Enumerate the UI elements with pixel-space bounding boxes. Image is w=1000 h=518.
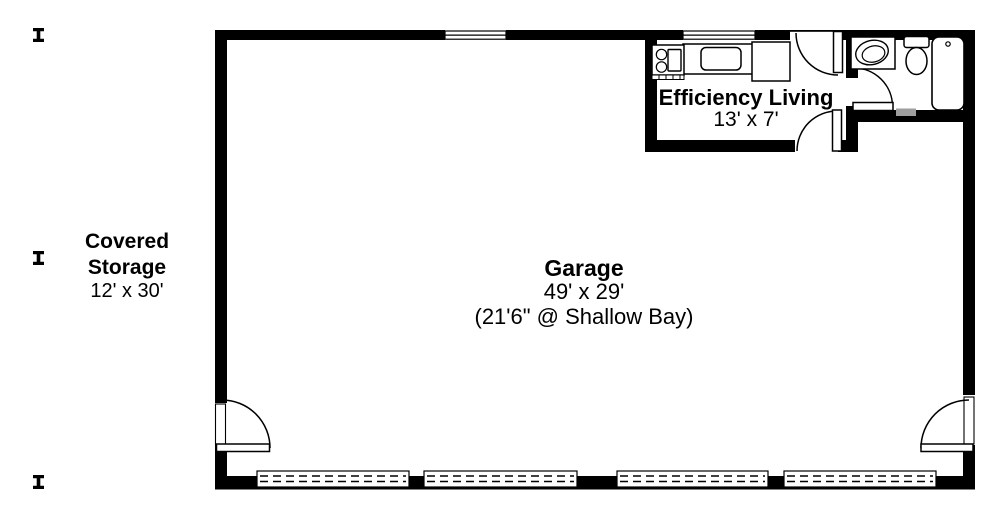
threshold	[896, 109, 916, 117]
covered-storage-dimensions: 12' x 30'	[85, 281, 169, 302]
post-icon	[33, 28, 44, 42]
efficiency-living-name: Efficiency Living	[659, 86, 834, 109]
efficiency-living-label: Efficiency Living 13' x 7'	[659, 86, 834, 131]
garage-door-panel	[257, 471, 409, 487]
range-icon	[652, 45, 684, 80]
post-icon	[33, 251, 44, 265]
garage-window-icon	[445, 31, 506, 39]
bathtub-icon	[932, 37, 964, 110]
garage-label: Garage 49' x 29' (21'6" @ Shallow Bay)	[475, 256, 694, 329]
garage-name: Garage	[475, 256, 694, 280]
garage-door-panel	[424, 471, 577, 487]
garage-note: (21'6" @ Shallow Bay)	[475, 304, 694, 329]
covered-storage-name: Covered Storage	[85, 229, 169, 281]
door-swing-icon	[921, 397, 974, 452]
kitchen-window-icon	[683, 31, 755, 39]
kitchen-sink-icon	[701, 48, 741, 71]
covered-storage-label: Covered Storage 12' x 30'	[85, 229, 169, 302]
floor-plan: Covered Storage 12' x 30' Garage 49' x 2…	[0, 0, 1000, 518]
toilet-icon	[904, 37, 929, 75]
refrigerator-icon	[752, 42, 790, 81]
efficiency-living-dimensions: 13' x 7'	[659, 109, 834, 131]
door-swing-icon	[216, 400, 271, 452]
door-swing-icon	[853, 68, 893, 111]
garage-dimensions: 49' x 29'	[475, 280, 694, 304]
vanity-sink-icon	[851, 37, 895, 69]
door-swing-icon	[796, 32, 843, 76]
garage-door-panel	[617, 471, 768, 487]
post-icon	[33, 475, 44, 489]
garage-door-panel	[784, 471, 936, 487]
